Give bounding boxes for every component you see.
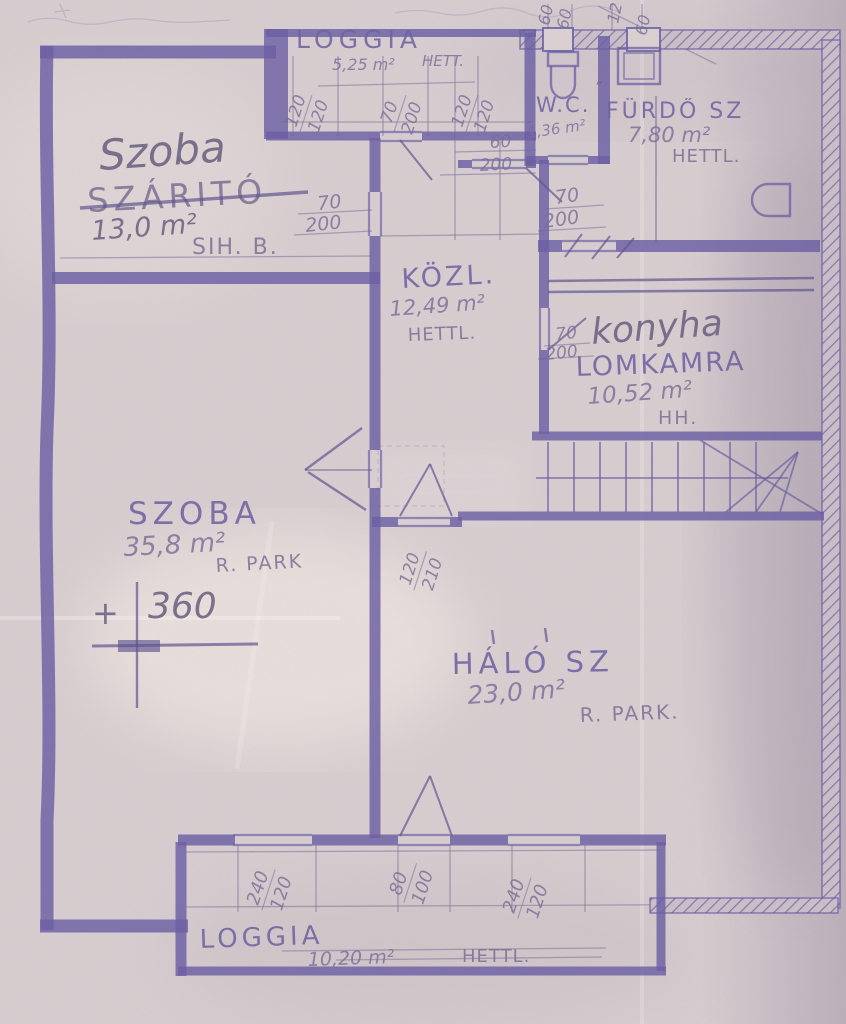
room-konyha-old-name: LOMKAMRA (575, 346, 746, 383)
room-szoba-nagy-area: 35,8 m² (123, 528, 226, 563)
svg-text:70: 70 (554, 184, 581, 209)
room-furdo-name: FÜRDŐ SZ (606, 98, 744, 124)
room-szoba-felso-note: SIH. B. (192, 235, 279, 260)
room-kozl-floor: HETTL. (407, 323, 476, 346)
room-szoba-nagy-name: SZOBA (128, 496, 261, 532)
room-szoba-nagy-floor: R. PARK (215, 550, 304, 577)
svg-text:200: 200 (304, 211, 342, 237)
room-halo-floor: R. PARK. (579, 700, 680, 727)
level-value: 360 (148, 586, 217, 627)
svg-text:200: 200 (479, 154, 512, 176)
room-loggia-felso-area: 5,25 m² (332, 55, 395, 74)
room-loggia-also-floor: HETTL. (462, 946, 530, 967)
svg-text:200: 200 (544, 342, 578, 365)
room-loggia-also-name: LOGGIA (199, 921, 324, 955)
room-kozl-name: KÖZL. (401, 258, 497, 295)
room-wc-name: W.C. (536, 93, 590, 117)
floor-plan-drawing: + 360 Szoba SZÁRITÓ 13,0 m² SIH. B. LOGG… (0, 0, 846, 1024)
room-furdo-mark: ″ (596, 77, 603, 101)
room-konyha-floor: HH. (658, 407, 698, 429)
level-sign: + (92, 594, 119, 632)
svg-text:60: 60 (489, 132, 512, 153)
room-furdo-area: 7,80 m² (628, 123, 711, 147)
room-loggia-felso-floor: HETT. (422, 52, 464, 70)
left-outer-wall (46, 46, 49, 930)
room-furdo-floor: HETTL. (672, 146, 740, 167)
room-szoba-felso-name: Szoba (97, 122, 227, 180)
room-loggia-felso-name: LOGGIA (296, 25, 422, 54)
bottom-right-wall (650, 898, 838, 913)
room-loggia-also-area: 10,20 m² (307, 946, 395, 971)
right-wall (822, 40, 840, 908)
blueprint-page: + 360 Szoba SZÁRITÓ 13,0 m² SIH. B. LOGG… (0, 0, 846, 1024)
shaft-box-left (543, 28, 573, 51)
level-marker-wedge (118, 640, 160, 652)
